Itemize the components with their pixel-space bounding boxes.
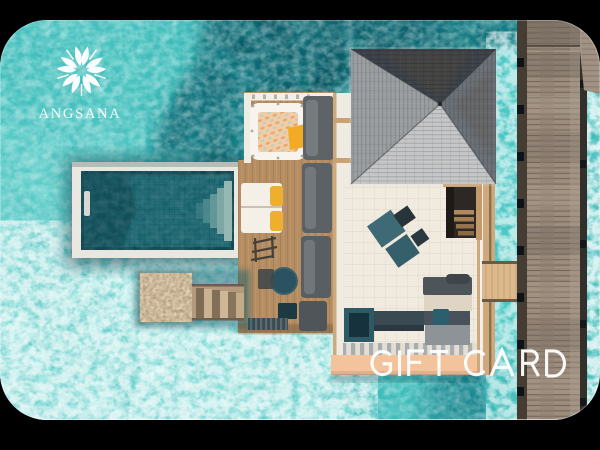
svg-text:ANGSANA: ANGSANA (39, 106, 122, 122)
